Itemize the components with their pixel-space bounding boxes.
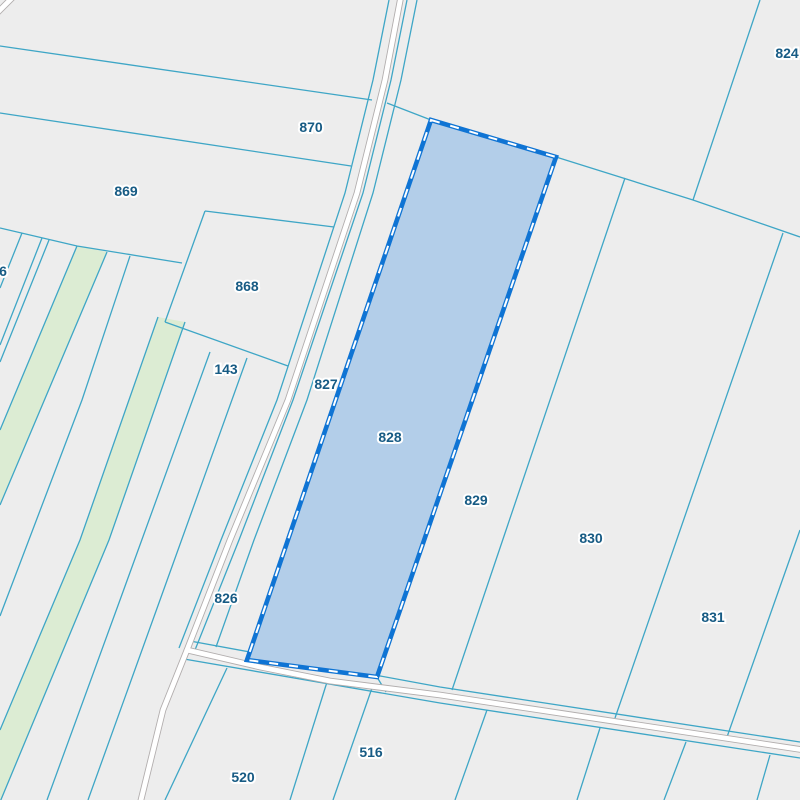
map-viewport[interactable]: 6870869868143827828826824829830831516520: [0, 0, 800, 800]
parcel-label-143: 143: [214, 361, 238, 377]
map-canvas[interactable]: 6870869868143827828826824829830831516520: [0, 0, 800, 800]
parcel-label-870: 870: [299, 119, 323, 135]
parcel-label-869: 869: [114, 183, 138, 199]
parcel-label-827: 827: [314, 376, 338, 392]
parcel-label-828-selected: 828: [378, 429, 402, 445]
parcel-label-826: 826: [214, 590, 238, 606]
parcel-label-520: 520: [231, 769, 255, 785]
parcel-label-831: 831: [701, 609, 725, 625]
parcel-label-868: 868: [235, 278, 259, 294]
parcel-label-516: 516: [359, 744, 383, 760]
parcel-label-6: 6: [0, 263, 7, 279]
parcel-label-830: 830: [579, 530, 603, 546]
parcel-label-829: 829: [464, 492, 488, 508]
parcel-label-824: 824: [775, 45, 799, 61]
